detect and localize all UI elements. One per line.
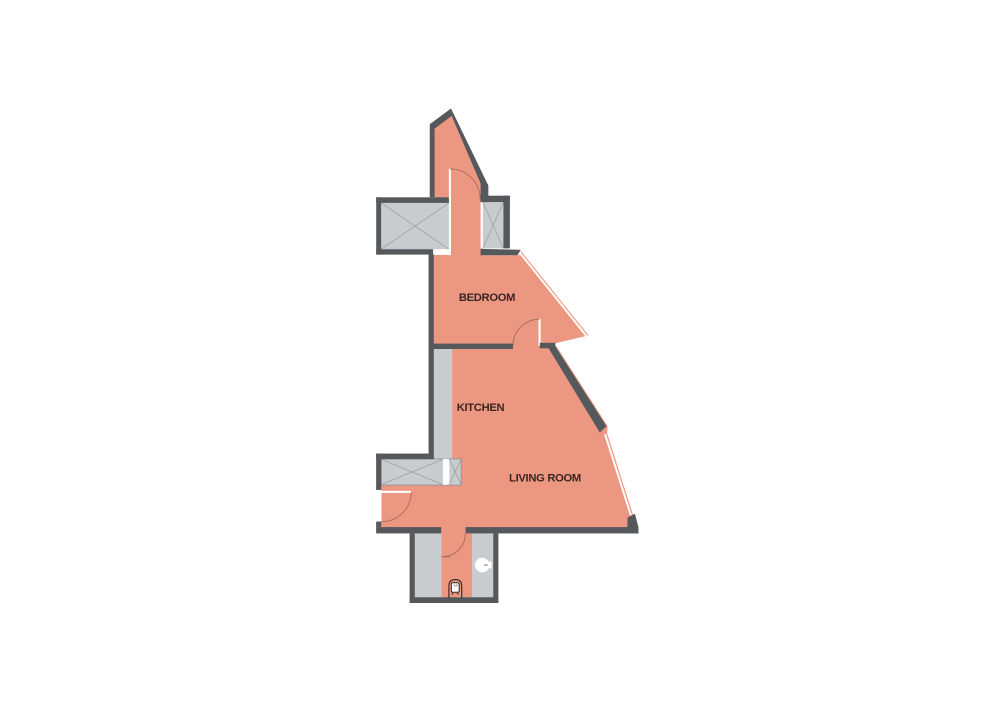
svg-text:KITCHEN: KITCHEN <box>457 402 505 414</box>
svg-text:LIVING ROOM: LIVING ROOM <box>509 472 581 484</box>
svg-text:BEDROOM: BEDROOM <box>459 292 515 304</box>
